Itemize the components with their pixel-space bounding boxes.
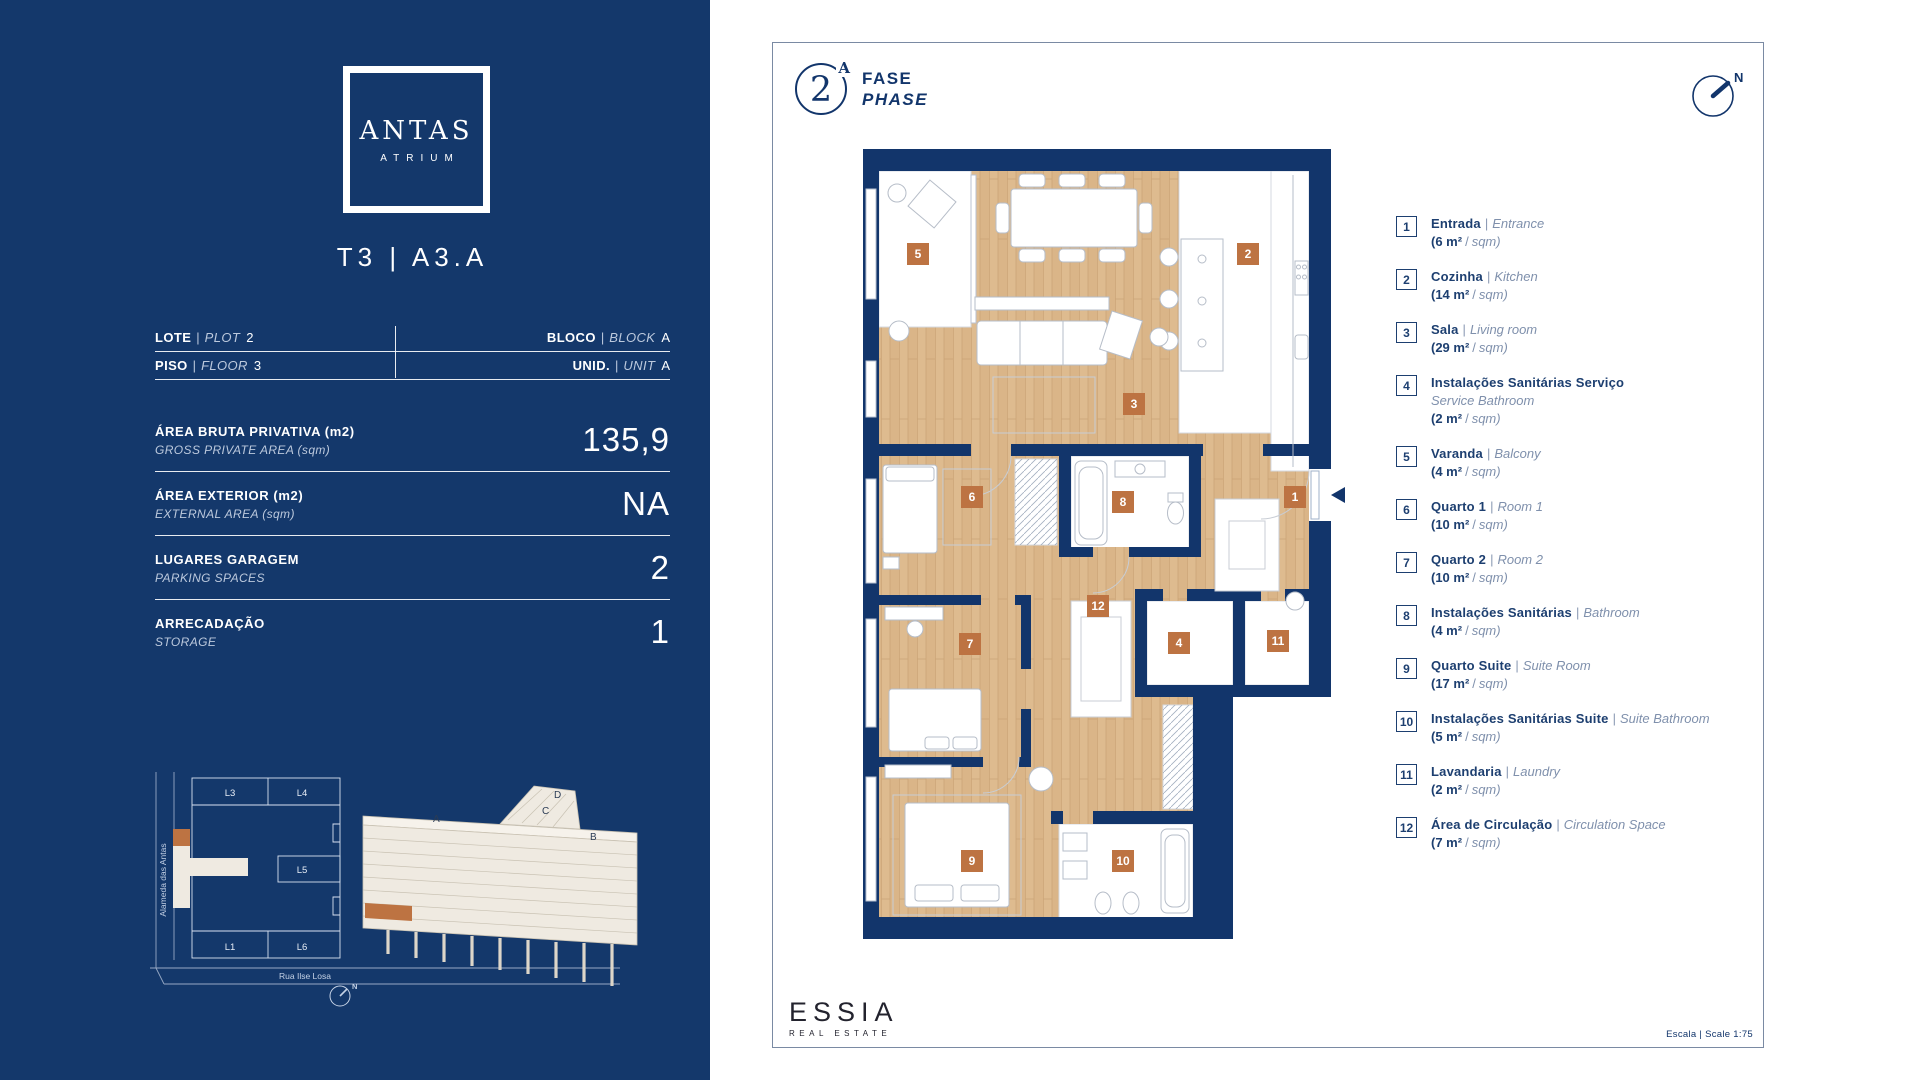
legend-item: 11 Lavandaria|Laundry (2 m²/sqm) — [1396, 763, 1751, 799]
unit-info-table: LOTE|PLOT2 BLOCO|BLOCKA PISO|FLOOR3 UNID… — [155, 324, 670, 380]
svg-text:A: A — [433, 814, 440, 825]
north-label: N — [352, 982, 357, 991]
svg-text:3: 3 — [1131, 397, 1138, 411]
table-divider — [395, 326, 396, 378]
room-marker: 10 — [1112, 850, 1134, 872]
room-marker: 2 — [1237, 243, 1259, 265]
legend-item: 2 Cozinha|Kitchen (14 m²/sqm) — [1396, 268, 1751, 304]
room-marker: 8 — [1112, 491, 1134, 513]
svg-text:8: 8 — [1120, 495, 1127, 509]
room-marker: 12 — [1087, 595, 1109, 617]
stat-value: 135,9 — [582, 421, 670, 459]
phase-circle: 2 A — [795, 63, 847, 115]
north-label: N — [1734, 70, 1743, 85]
svg-text:L4: L4 — [297, 788, 308, 799]
legend-item: 4 Instalações Sanitárias Serviço Service… — [1396, 374, 1751, 428]
plot-building-footprint — [173, 829, 248, 908]
plan-panel: 2 A FASE PHASE N — [772, 42, 1764, 1048]
unit-cell: UNID.|UNITA — [573, 358, 670, 373]
svg-text:C: C — [542, 806, 549, 817]
svg-text:12: 12 — [1091, 599, 1105, 613]
stat-storage: ARRECADAÇÃOSTORAGE 1 — [155, 600, 670, 663]
compass-icon: N — [1687, 67, 1749, 119]
stat-gross-area: ÁREA BRUTA PRIVATIVA (m2)GROSS PRIVATE A… — [155, 408, 670, 472]
site-plan: Alameda das Antas Rua Ilse Losa L3 L4 — [150, 772, 690, 1017]
floorplan-sheet: ANTAS ATRIUM T3 | A3.A LOTE|PLOT2 BLOCO|… — [0, 0, 1920, 1080]
floor-cell: PISO|FLOOR3 — [155, 358, 261, 373]
room-marker: 4 — [1168, 632, 1190, 654]
room-marker: 3 — [1123, 393, 1145, 415]
legend-item: 6 Quarto 1|Room 1 (10 m²/sqm) — [1396, 498, 1751, 534]
stat-value: 1 — [651, 613, 670, 651]
stat-value: NA — [622, 485, 670, 523]
svg-text:1: 1 — [1292, 490, 1299, 504]
legend-item: 12 Área de Circulação|Circulation Space … — [1396, 816, 1751, 852]
svg-text:L6: L6 — [297, 942, 308, 953]
street-left-label: Alameda das Antas — [158, 843, 168, 916]
essia-logo: ESSIA REAL ESTATE — [789, 997, 899, 1038]
compass-sidebar: N — [330, 982, 357, 1006]
svg-text:7: 7 — [967, 637, 974, 651]
legend-item: 3 Sala|Living room (29 m²/sqm) — [1396, 321, 1751, 357]
unit-stats: ÁREA BRUTA PRIVATIVA (m2)GROSS PRIVATE A… — [155, 408, 670, 663]
entry-arrow-icon — [1331, 487, 1345, 503]
svg-text:L1: L1 — [225, 942, 236, 953]
svg-text:2: 2 — [1245, 247, 1252, 261]
legend-item: 10 Instalações Sanitárias Suite|Suite Ba… — [1396, 710, 1751, 746]
unit-title: T3 | A3.A — [155, 242, 670, 273]
room-marker: 7 — [959, 633, 981, 655]
svg-text:B: B — [590, 832, 597, 843]
svg-text:4: 4 — [1176, 636, 1183, 650]
stat-value: 2 — [651, 549, 670, 587]
svg-text:5: 5 — [915, 247, 922, 261]
legend-item: 5 Varanda|Balcony (4 m²/sqm) — [1396, 445, 1751, 481]
stat-external-area: ÁREA EXTERIOR (m2)EXTERNAL AREA (sqm) NA — [155, 472, 670, 536]
phase-badge: 2 A FASE PHASE — [795, 63, 928, 115]
room-marker: 9 — [961, 850, 983, 872]
block-cell: BLOCO|BLOCKA — [547, 330, 670, 345]
legend-item: 9 Quarto Suite|Suite Room (17 m²/sqm) — [1396, 657, 1751, 693]
legend-item: 1 Entrada|Entrance (6 m²/sqm) — [1396, 215, 1751, 251]
kitchen-cabinets — [1271, 171, 1309, 471]
stat-parking: LUGARES GARAGEMPARKING SPACES 2 — [155, 536, 670, 600]
lot-cell: LOTE|PLOT2 — [155, 330, 253, 345]
table-row: PISO|FLOOR3 UNID.|UNITA — [155, 352, 670, 380]
room-marker: 6 — [961, 486, 983, 508]
floor-plan: 1 2 3 4 5 6 7 8 9 10 11 12 — [863, 149, 1349, 939]
svg-text:11: 11 — [1272, 634, 1285, 648]
legend-item: 8 Instalações Sanitárias|Bathroom (4 m²/… — [1396, 604, 1751, 640]
room-marker: 11 — [1267, 630, 1289, 652]
sidebar: ANTAS ATRIUM T3 | A3.A LOTE|PLOT2 BLOCO|… — [0, 0, 710, 1080]
svg-text:L3: L3 — [225, 788, 236, 799]
building-3d: A B C D — [363, 786, 637, 986]
svg-text:6: 6 — [969, 490, 976, 504]
brand-logo: ANTAS ATRIUM — [343, 66, 490, 213]
svg-text:9: 9 — [969, 854, 976, 868]
room-marker: 5 — [907, 243, 929, 265]
room-legend: 1 Entrada|Entrance (6 m²/sqm) 2 Cozinha|… — [1396, 215, 1751, 852]
brand-name: ANTAS — [359, 116, 473, 146]
street-bottom-label: Rua Ilse Losa — [279, 971, 331, 981]
highlighted-floor — [365, 903, 412, 921]
phase-label: FASE PHASE — [862, 68, 928, 110]
svg-text:L5: L5 — [297, 865, 308, 876]
highlighted-lot — [173, 829, 190, 846]
table-row: LOTE|PLOT2 BLOCO|BLOCKA — [155, 324, 670, 352]
svg-text:D: D — [554, 790, 561, 801]
room-marker: 1 — [1284, 486, 1306, 508]
scale-note: Escala | Scale 1:75 — [1666, 1029, 1753, 1040]
entry-door — [1311, 471, 1319, 519]
legend-item: 7 Quarto 2|Room 2 (10 m²/sqm) — [1396, 551, 1751, 587]
svg-text:10: 10 — [1116, 854, 1130, 868]
brand-subname: ATRIUM — [373, 153, 460, 164]
